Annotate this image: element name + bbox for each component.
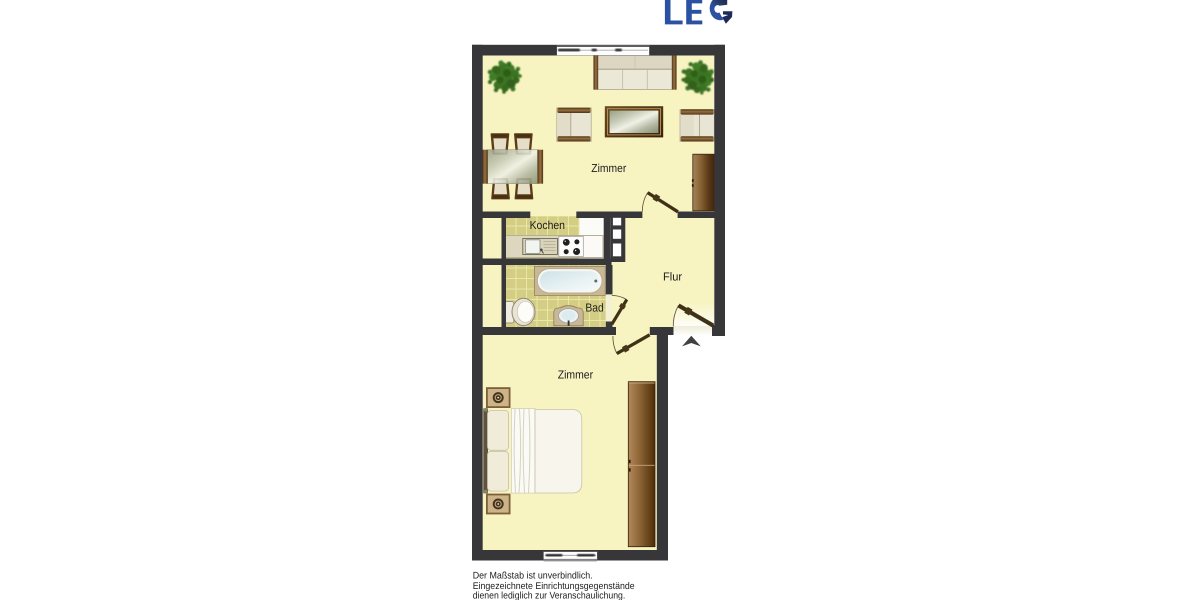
- svg-text:Zimmer: Zimmer: [591, 162, 626, 175]
- svg-text:Flur: Flur: [663, 271, 682, 284]
- svg-text:Der Maßstab ist unverbindlich.: Der Maßstab ist unverbindlich.: [473, 571, 593, 582]
- svg-text:Zimmer: Zimmer: [558, 369, 594, 382]
- svg-text:Bad: Bad: [585, 301, 603, 314]
- svg-text:dienen lediglich zur Veranscha: dienen lediglich zur Veranschaulichung.: [473, 591, 626, 600]
- svg-text:Kochen: Kochen: [530, 219, 565, 232]
